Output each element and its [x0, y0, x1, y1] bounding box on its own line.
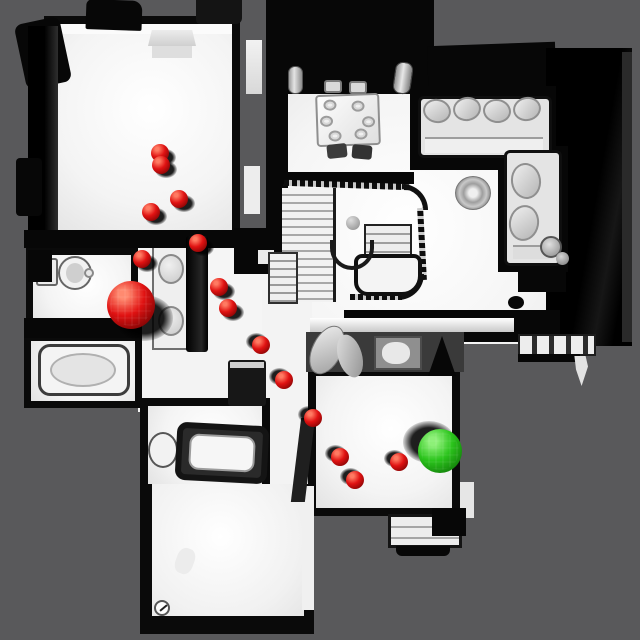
- waypoint-marker: [331, 448, 349, 466]
- sphere: [331, 448, 349, 466]
- waypoint-marker: [346, 471, 364, 489]
- sphere: [304, 409, 322, 427]
- sphere: [219, 299, 237, 317]
- waypoint-marker: [142, 203, 160, 221]
- sphere: [142, 203, 160, 221]
- waypoint-marker: [189, 234, 207, 252]
- sphere: [133, 250, 151, 268]
- waypoint-marker: [252, 336, 270, 354]
- sphere: [152, 156, 170, 174]
- goal-marker: [418, 429, 462, 473]
- waypoint-marker: [133, 250, 151, 268]
- sphere: [170, 190, 188, 208]
- sphere: [107, 281, 155, 329]
- sphere: [346, 471, 364, 489]
- sphere: [275, 371, 293, 389]
- waypoint-marker: [152, 156, 170, 174]
- waypoint-marker: [275, 371, 293, 389]
- sphere: [210, 278, 228, 296]
- start-marker: [107, 281, 155, 329]
- waypoint-marker: [304, 409, 322, 427]
- sphere: [189, 234, 207, 252]
- waypoint-marker: [219, 299, 237, 317]
- sphere: [390, 453, 408, 471]
- markers-layer: [0, 0, 640, 640]
- house-topdown-render: [0, 0, 640, 640]
- sphere: [418, 429, 462, 473]
- waypoint-marker: [390, 453, 408, 471]
- waypoint-marker: [210, 278, 228, 296]
- waypoint-marker: [170, 190, 188, 208]
- sphere: [252, 336, 270, 354]
